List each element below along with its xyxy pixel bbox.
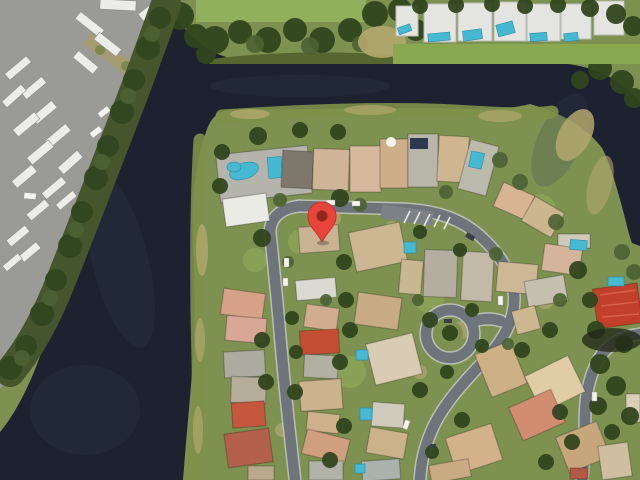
solar-panel — [410, 138, 428, 149]
satellite-map-view[interactable] — [0, 0, 640, 480]
map-canvas — [0, 0, 640, 480]
clubhouse-roof — [222, 193, 269, 227]
pin-shadow — [317, 241, 329, 246]
satellite-dome — [386, 137, 396, 147]
condo-row — [393, 0, 640, 64]
road-tree-shadow — [582, 328, 640, 352]
pin-dot — [317, 211, 328, 222]
